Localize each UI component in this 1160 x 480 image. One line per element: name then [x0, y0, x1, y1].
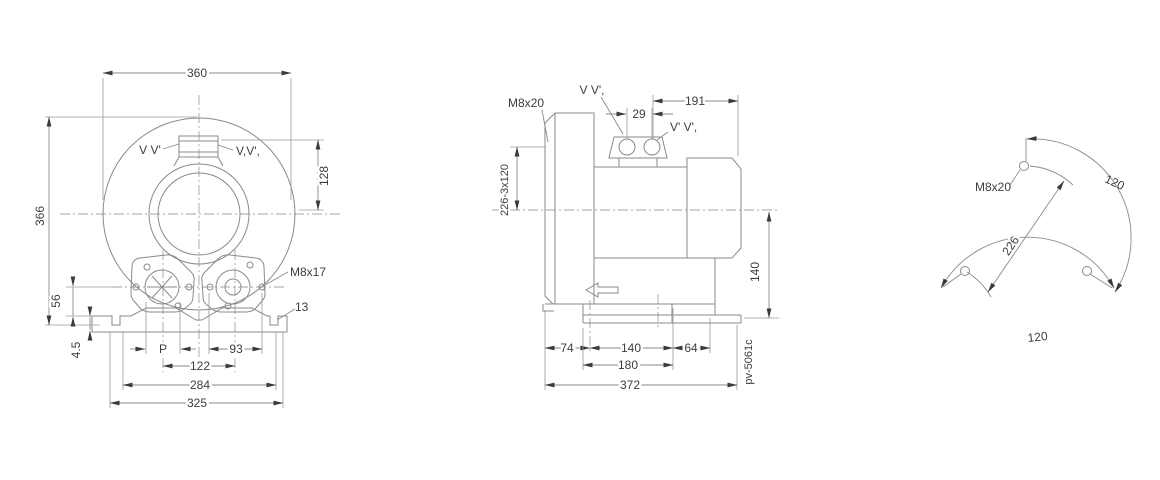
dim-foot-hole-span: 284 — [190, 378, 210, 392]
dim-foot-plate: 4.5 — [69, 341, 83, 358]
dim-foot-mid: 140 — [621, 341, 641, 355]
port-label-left: V V' — [139, 143, 161, 157]
dim-port-holes: 29 — [632, 107, 646, 121]
bolt-circle-stub-bottom — [967, 272, 991, 297]
flange-bolt-circle-view: 226 M8x20 120 120 — [941, 138, 1131, 345]
side-view: 29 191 M8x20 226-3x120 140 74 1 — [492, 83, 779, 392]
port-label-right-side: V' V', — [670, 120, 697, 134]
dim-port-bore: P — [159, 342, 167, 356]
motor-outline — [687, 158, 741, 258]
dim-port-height: 128 — [317, 166, 331, 186]
blower-dimension-drawing: 360 366 128 56 4.5 — [0, 0, 1160, 480]
dim-overall-width: 360 — [187, 66, 207, 80]
thread-label-side: M8x20 — [508, 96, 544, 110]
thread-label-front: M8x17 — [290, 265, 326, 279]
dim-flange-bolt-span: 93 — [229, 342, 243, 356]
hole-stubs — [943, 138, 1112, 288]
dim-foot-width: 180 — [618, 358, 638, 372]
engineering-drawing-canvas: 360 366 128 56 4.5 — [0, 0, 1160, 480]
front-dimensions: 360 366 128 56 4.5 — [33, 66, 331, 410]
dim-foot-right: 64 — [684, 341, 698, 355]
base-foot — [92, 308, 287, 332]
dim-motor-length: 191 — [685, 94, 705, 108]
angle-arc-bottom — [941, 237, 1114, 288]
flow-direction-arrow-icon — [586, 283, 618, 297]
dim-total-length: 372 — [620, 378, 640, 392]
dim-port-spacing: 122 — [190, 359, 210, 373]
dim-port-center-height: 56 — [49, 294, 63, 308]
bolt-circle-label-side: 226-3x120 — [499, 164, 511, 216]
top-port — [174, 136, 223, 166]
bolt-circle-stub-top — [1030, 166, 1073, 185]
dim-bolt-circle: 226 — [999, 233, 1022, 258]
side-base — [583, 304, 741, 323]
port-label-right: V,V', — [236, 144, 260, 158]
port-label-top-side: V V', — [580, 83, 605, 97]
front-view: 360 366 128 56 4.5 — [33, 66, 340, 410]
side-housing — [545, 167, 715, 315]
side-top-port — [609, 137, 667, 167]
front-centerlines — [60, 95, 340, 372]
angle-arc-right — [1027, 139, 1131, 292]
foot-slot-label: 13 — [295, 300, 309, 314]
bolt-holes — [961, 162, 1092, 276]
dim-foot-left: 74 — [560, 341, 574, 355]
doc-number: pv-5061c — [743, 339, 755, 385]
dim-axis-height: 140 — [748, 262, 762, 282]
thread-label-flange: M8x20 — [975, 180, 1011, 194]
dim-overall-height: 366 — [33, 206, 47, 226]
dim-base-width: 325 — [187, 396, 207, 410]
side-dimensions: 29 191 M8x20 226-3x120 140 74 1 — [499, 83, 779, 392]
cover-plate — [543, 113, 594, 311]
angle-label-bottom: 120 — [1027, 329, 1049, 345]
angle-label-right: 120 — [1103, 172, 1127, 193]
